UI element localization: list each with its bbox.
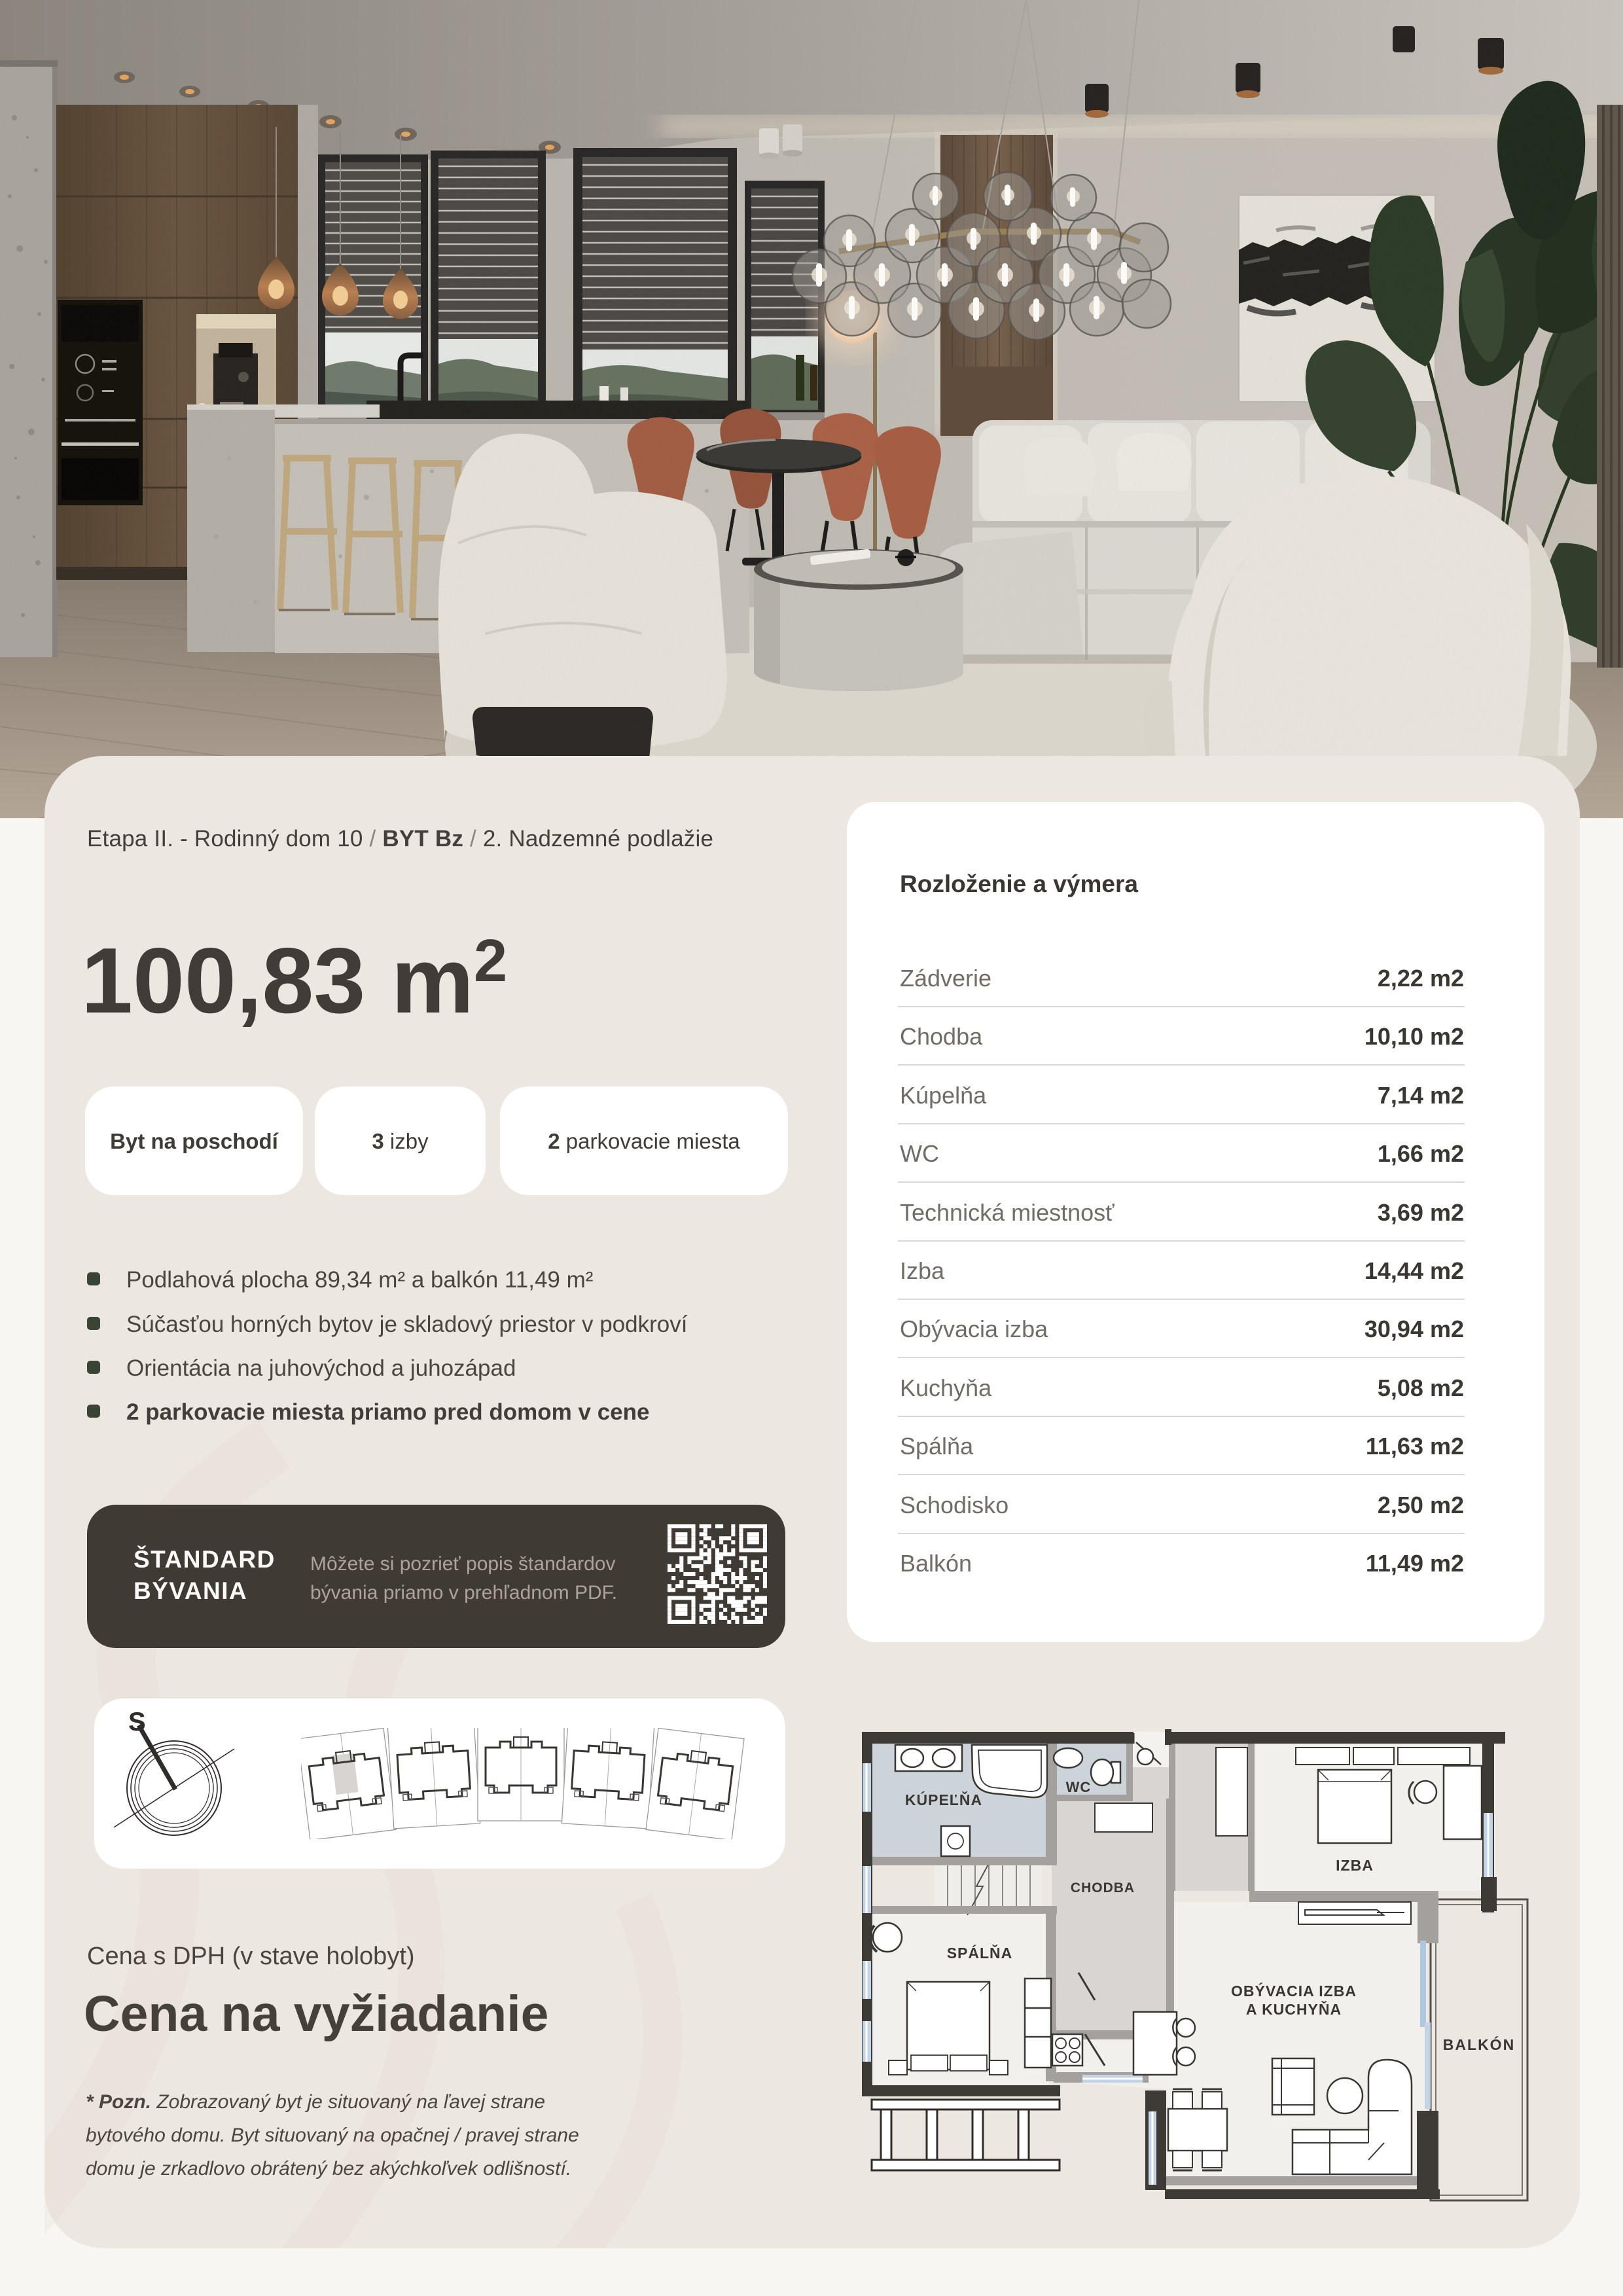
svg-text:IZBA: IZBA: [1336, 1857, 1374, 1874]
svg-text:KÚPEĽŇA: KÚPEĽŇA: [905, 1791, 982, 1808]
svg-text:OBÝVACIA IZBA: OBÝVACIA IZBA: [1231, 1982, 1357, 2000]
svg-text:A KUCHYŇA: A KUCHYŇA: [1246, 2000, 1342, 2018]
svg-text:WC: WC: [1066, 1779, 1092, 1795]
svg-text:BALKÓN: BALKÓN: [1443, 2036, 1515, 2053]
svg-text:SPÁLŇA: SPÁLŇA: [947, 1944, 1013, 1962]
svg-text:CHODBA: CHODBA: [1071, 1880, 1135, 1895]
svg-text:S: S: [128, 1708, 146, 1736]
